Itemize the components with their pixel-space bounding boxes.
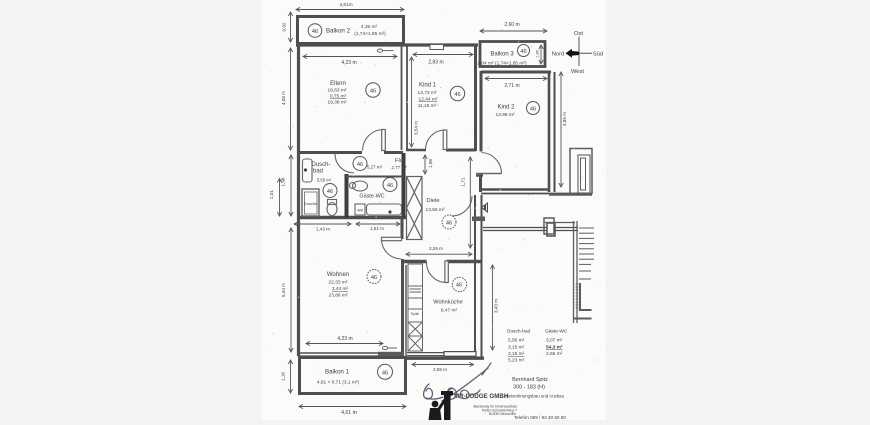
svg-text:46: 46 [387, 183, 393, 189]
svg-text:Bernhard Spitz: Bernhard Spitz [512, 377, 548, 383]
svg-text:1,71: 1,71 [461, 177, 466, 186]
svg-text:5,56 m²: 5,56 m² [508, 338, 525, 344]
svg-text:Dusch-bad: Dusch-bad [507, 329, 531, 335]
svg-text:1,51 m: 1,51 m [370, 226, 384, 231]
svg-text:Gäste-WC: Gäste-WC [545, 329, 568, 335]
svg-text:4,23 m: 4,23 m [337, 336, 352, 342]
svg-text:13,73 m²: 13,73 m² [418, 90, 437, 96]
svg-text:5,23 m²: 5,23 m² [508, 358, 525, 364]
svg-text:3,15 m²: 3,15 m² [508, 351, 525, 357]
svg-text:3,15 m²: 3,15 m² [508, 344, 525, 350]
svg-text:2,77 m²: 2,77 m² [391, 165, 407, 170]
svg-text:46: 46 [456, 283, 462, 289]
svg-text:Diele: Diele [426, 198, 439, 204]
svg-text:3,44 m²: 3,44 m² [332, 286, 349, 292]
svg-text:2,65 m²: 2,65 m² [546, 351, 563, 357]
svg-text:4,61 × 0,71 (3,1 m²): 4,61 × 0,71 (3,1 m²) [317, 379, 360, 385]
svg-text:46: 46 [357, 162, 363, 168]
svg-text:Süd: Süd [593, 51, 603, 57]
svg-text:Nord: Nord [552, 51, 565, 57]
svg-text:Dusche: Dusche [304, 201, 318, 206]
svg-text:1,43 m: 1,43 m [316, 227, 330, 232]
svg-text:46: 46 [454, 92, 460, 98]
svg-text:46: 46 [327, 189, 333, 195]
svg-text:54,3 m²: 54,3 m² [546, 344, 563, 350]
svg-text:46: 46 [530, 107, 536, 113]
svg-text:Kind 1: Kind 1 [419, 83, 437, 89]
svg-text:Eltern: Eltern [330, 81, 346, 87]
svg-text:2,83 m: 2,83 m [428, 60, 443, 66]
svg-text:0,92: 0,92 [282, 22, 287, 31]
svg-text:81930 München: 81930 München [489, 412, 516, 416]
svg-text:2,55 m: 2,55 m [433, 367, 447, 372]
svg-text:19,38 m²: 19,38 m² [328, 100, 347, 106]
svg-text:1,98: 1,98 [428, 159, 433, 168]
svg-text:5,56 m²: 5,56 m² [317, 178, 332, 183]
svg-text:23,86 m²: 23,86 m² [329, 293, 348, 299]
svg-text:Telefon 089 / 93 40 50 60: Telefon 089 / 93 40 50 60 [514, 415, 566, 420]
svg-text:4,08 m: 4,08 m [281, 91, 286, 105]
svg-text:bad: bad [313, 169, 323, 175]
svg-text:18,63 m²: 18,63 m² [328, 88, 347, 94]
svg-text:Kind 2: Kind 2 [497, 105, 515, 111]
svg-text:0,75 m²: 0,75 m² [330, 94, 347, 100]
svg-text:1,16: 1,16 [281, 372, 286, 381]
svg-text:Dusch-: Dusch- [311, 162, 330, 168]
svg-text:Spüle: Spüle [411, 312, 419, 316]
svg-text:46: 46 [370, 89, 376, 95]
svg-text:Ost: Ost [574, 31, 583, 37]
svg-text:22,33 m²: 22,33 m² [329, 280, 348, 286]
svg-text:2,04 m² (1,74×1,85 m²): 2,04 m² (1,74×1,85 m²) [477, 61, 527, 67]
svg-text:1,98: 1,98 [281, 177, 286, 186]
svg-text:4,23 m: 4,23 m [341, 60, 356, 66]
svg-text:Mietwohnungsbau und Ausbau: Mietwohnungsbau und Ausbau [504, 394, 565, 399]
svg-text:Balkon 1: Balkon 1 [325, 369, 350, 376]
svg-text:Balkon 2: Balkon 2 [326, 28, 351, 35]
svg-text:4,85 m: 4,85 m [562, 112, 567, 126]
svg-text:4,61 m: 4,61 m [341, 410, 357, 416]
svg-text:2,60 m: 2,60 m [504, 22, 519, 28]
svg-text:11,16 m²: 11,16 m² [418, 103, 437, 109]
svg-text:46: 46 [446, 221, 452, 227]
svg-text:2,01: 2,01 [269, 190, 274, 199]
svg-text:3,54 m: 3,54 m [414, 121, 419, 135]
svg-text:Balkon 3: Balkon 3 [490, 52, 514, 58]
svg-text:4,61m: 4,61m [339, 2, 352, 8]
svg-text:12,44 m²: 12,44 m² [419, 97, 438, 103]
svg-text:2,71 m: 2,71 m [504, 83, 519, 89]
svg-text:9,47 m²: 9,47 m² [441, 308, 458, 314]
svg-text:Flur: Flur [395, 158, 405, 164]
svg-text:4,35 m²: 4,35 m² [361, 24, 378, 30]
svg-text:3,07 m²: 3,07 m² [546, 338, 563, 344]
svg-text:(1,74×1,85 m²): (1,74×1,85 m²) [354, 31, 386, 37]
svg-text:2,26 m: 2,26 m [429, 246, 443, 251]
svg-text:46: 46 [382, 370, 388, 376]
svg-text:3,43 m: 3,43 m [494, 299, 499, 313]
svg-text:WM: WM [357, 209, 363, 213]
svg-text:Gäste-WC: Gäste-WC [359, 194, 384, 200]
svg-text:1,85: 1,85 [536, 50, 540, 57]
svg-text:13,56 m²: 13,56 m² [426, 207, 445, 213]
svg-text:13,98 m²: 13,98 m² [496, 112, 515, 118]
svg-text:Wohnküche: Wohnküche [433, 300, 462, 306]
svg-text:Wohnen: Wohnen [327, 272, 349, 278]
svg-text:300 - 183 (H): 300 - 183 (H) [513, 385, 545, 391]
svg-text:46: 46 [371, 275, 377, 281]
svg-text:46: 46 [312, 29, 318, 35]
svg-text:West: West [571, 69, 584, 75]
svg-text:5,44 m: 5,44 m [281, 283, 286, 297]
svg-text:46: 46 [520, 49, 526, 55]
svg-text:5,27 m²: 5,27 m² [367, 165, 383, 170]
